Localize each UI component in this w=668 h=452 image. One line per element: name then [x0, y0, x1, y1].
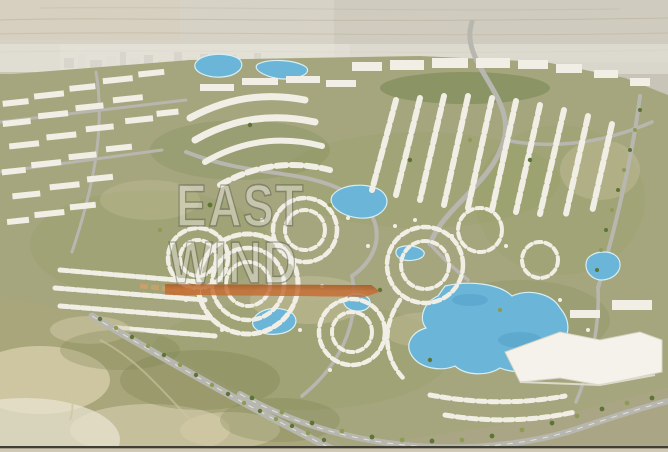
lake-east-small — [586, 252, 620, 280]
aerial-scene — [0, 0, 668, 452]
property-aerial-masterplan-image: EAST WIND — [0, 0, 668, 452]
watermark: EAST WIND — [146, 178, 326, 292]
bottom-border-line — [0, 446, 668, 452]
watermark-text-line1: EAST — [174, 178, 307, 235]
watermark-underline-stripe — [165, 283, 380, 297]
watermark-text-line2: WIND — [161, 235, 305, 292]
lagoon-top-west — [195, 54, 242, 77]
